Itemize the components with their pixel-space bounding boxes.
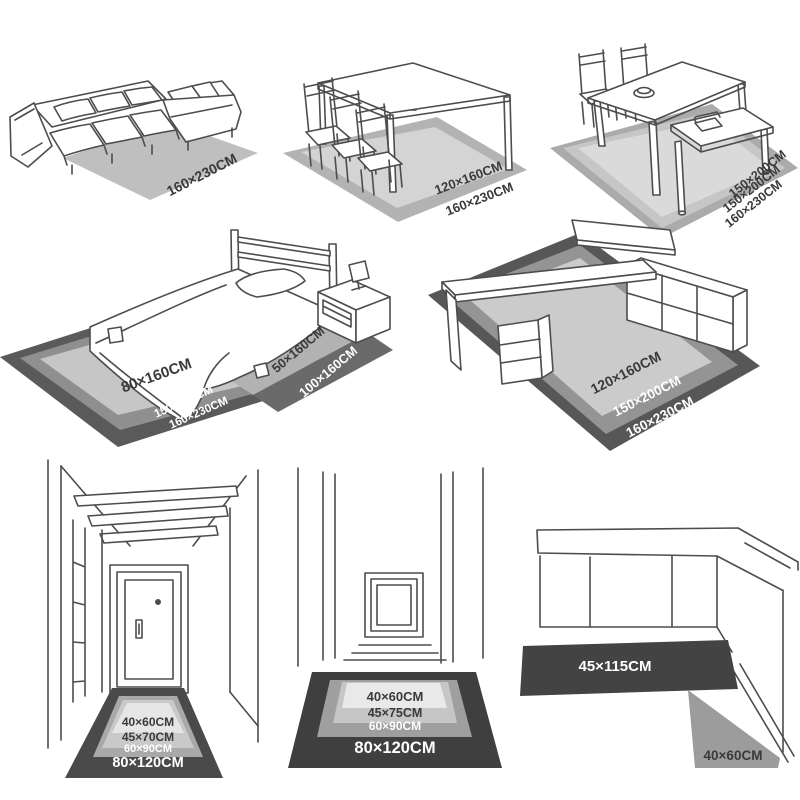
scene-living-room: 160×230CM: [0, 55, 300, 205]
rug-size-label: 40×60CM: [122, 715, 174, 729]
rug-size-label: 40×60CM: [704, 748, 763, 763]
rug-size-label: 80×120CM: [354, 739, 435, 757]
corridor-illustration: [298, 468, 483, 666]
scene-dining-table: 120×160CM 160×230CM: [280, 40, 545, 240]
scene-entry-corridor: 40×60CM 45×75CM 60×90CM 80×120CM: [285, 460, 520, 790]
rug-size-label: 60×90CM: [124, 743, 172, 755]
scene-kitchen: 45×115CM 40×60CM: [520, 490, 800, 800]
rug-size-label: 80×120CM: [112, 755, 183, 771]
rug-size-label: 40×60CM: [367, 689, 424, 704]
rug-size-label: 60×90CM: [369, 719, 421, 733]
rug-size-guide: 160×230CM: [0, 0, 800, 800]
rug-size-label: 45×70CM: [122, 730, 174, 744]
scene-desk: 120×160CM 150×200CM 160×230CM: [420, 220, 800, 465]
scene-hallway: 40×60CM 45×70CM 60×90CM 80×120CM: [30, 450, 280, 785]
scene-bedroom: 80×160CM 150×200CM 160×230CM 50×160CM 10…: [0, 225, 420, 440]
rug-size-label: 45×115CM: [579, 658, 652, 675]
rug-size-label: 45×75CM: [368, 706, 423, 720]
door-knob: [156, 600, 160, 604]
